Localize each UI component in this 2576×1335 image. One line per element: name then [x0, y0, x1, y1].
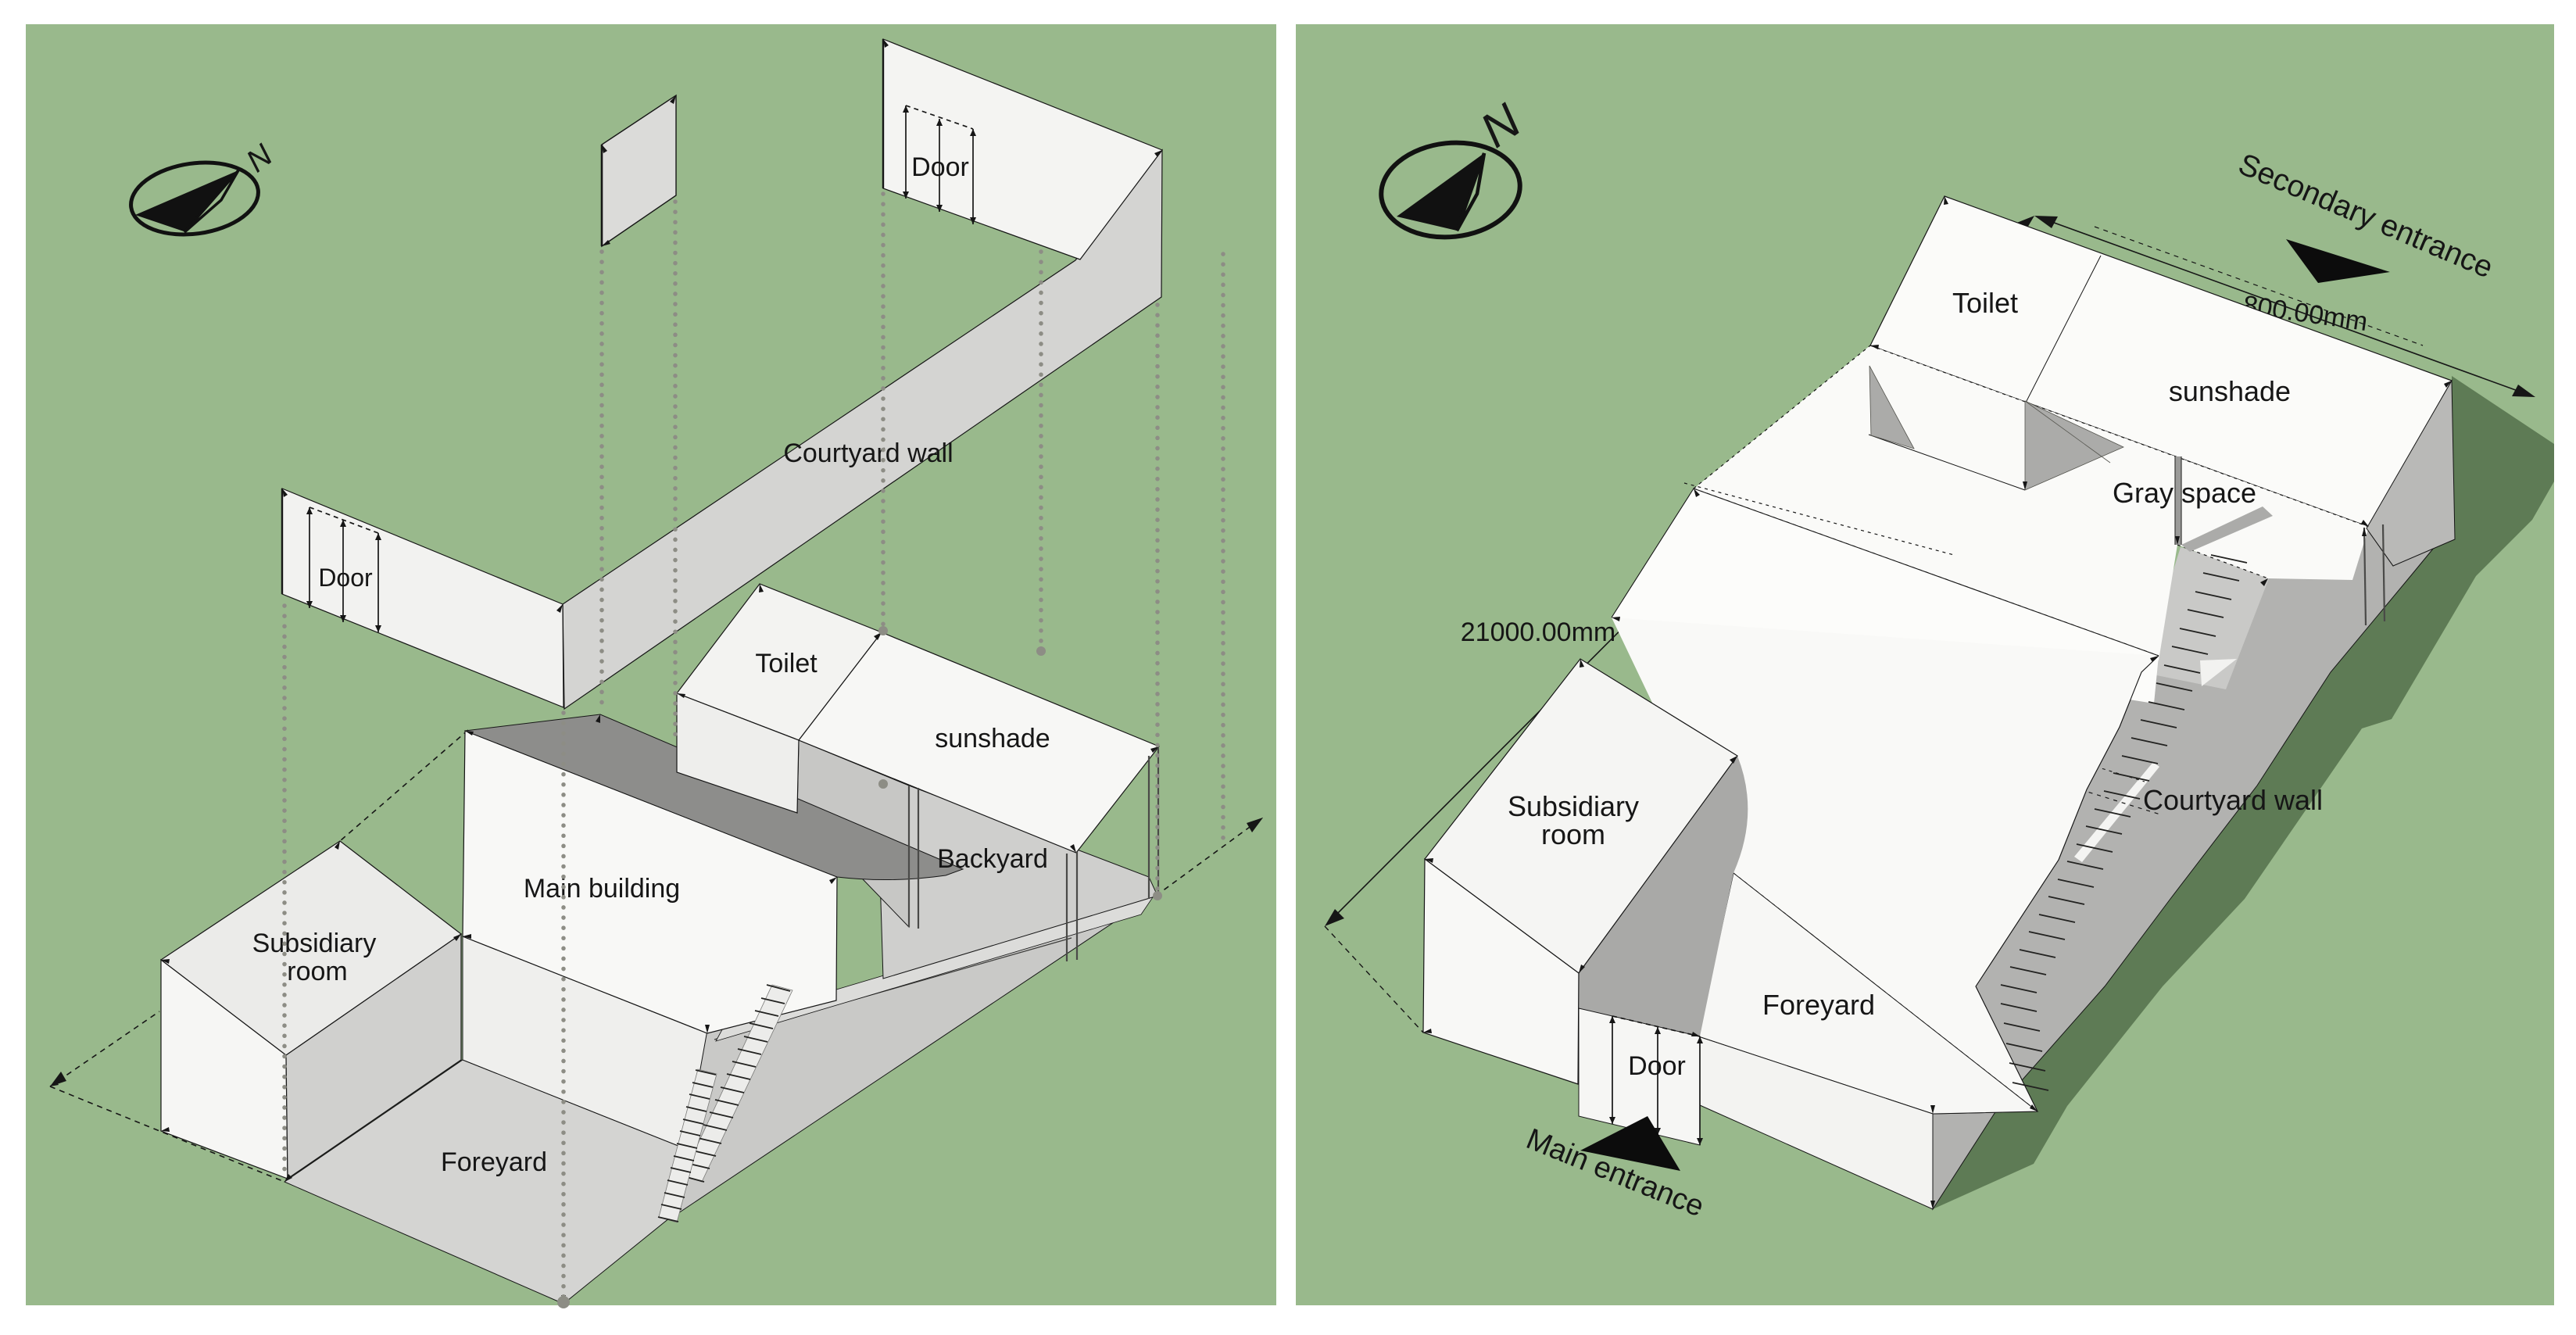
svg-text:Backyard: Backyard [937, 844, 1048, 874]
svg-text:Main building: Main building [524, 874, 680, 904]
svg-text:Door: Door [1628, 1051, 1686, 1081]
svg-text:21000.00mm: 21000.00mm [1461, 617, 1615, 647]
svg-text:Gray space: Gray space [2113, 477, 2256, 509]
svg-text:room: room [1541, 818, 1605, 850]
svg-text:Subsidiary: Subsidiary [1508, 790, 1639, 822]
svg-text:Door: Door [911, 152, 969, 182]
svg-text:Toilet: Toilet [755, 649, 818, 678]
svg-text:sunshade: sunshade [2169, 375, 2291, 407]
svg-text:Subsidiary: Subsidiary [252, 929, 377, 958]
svg-text:Foreyard: Foreyard [441, 1147, 547, 1177]
svg-text:sunshade: sunshade [935, 724, 1050, 753]
svg-text:Foreyard: Foreyard [1762, 989, 1875, 1021]
svg-text:Courtyard wall: Courtyard wall [2143, 784, 2323, 816]
svg-text:Courtyard wall: Courtyard wall [783, 438, 953, 468]
svg-text:Door: Door [318, 564, 373, 592]
svg-text:room: room [287, 957, 347, 986]
svg-text:Toilet: Toilet [1952, 287, 2018, 319]
